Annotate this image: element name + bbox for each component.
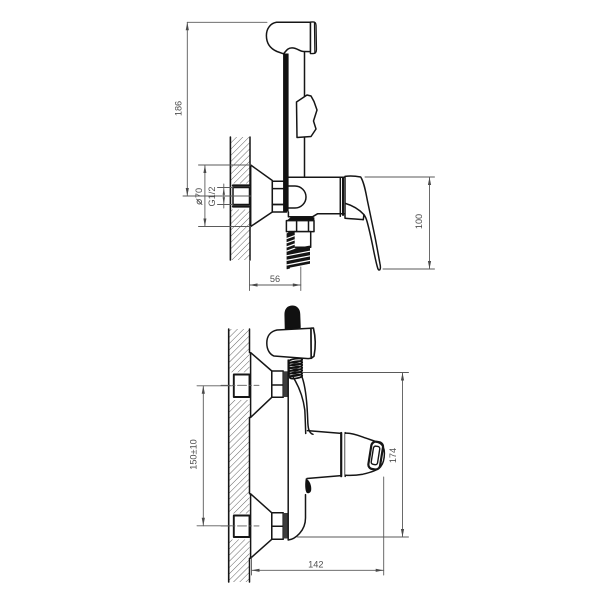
svg-text:142: 142: [308, 559, 323, 569]
svg-text:G1/2: G1/2: [207, 187, 217, 207]
svg-text:56: 56: [270, 274, 280, 284]
svg-text:70: 70: [194, 188, 204, 198]
svg-text:150±10: 150±10: [189, 439, 199, 470]
svg-text:174: 174: [388, 448, 398, 463]
svg-text:100: 100: [414, 214, 424, 229]
svg-text:186: 186: [174, 101, 184, 116]
